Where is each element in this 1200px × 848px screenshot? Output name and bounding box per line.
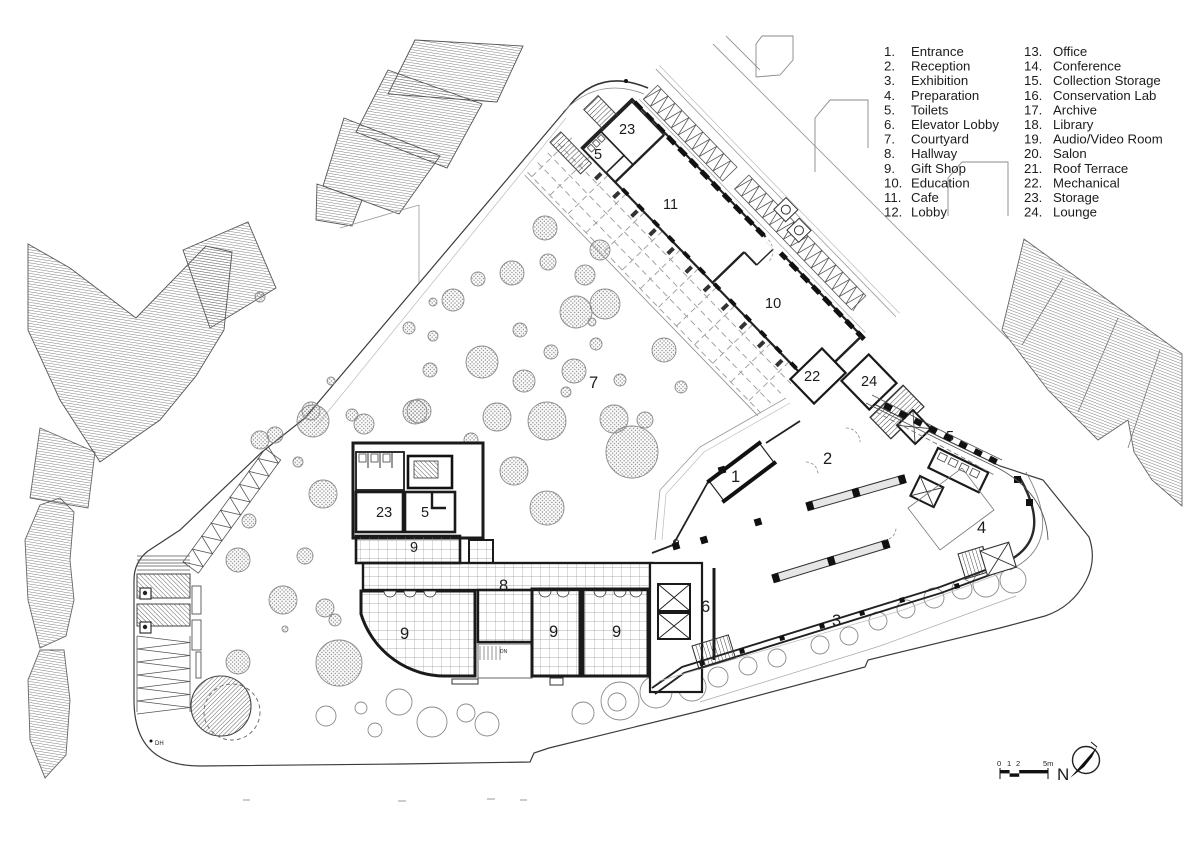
svg-text:Conference: Conference [1053, 59, 1121, 74]
svg-text:Cafe: Cafe [911, 190, 939, 205]
svg-text:8.: 8. [884, 146, 895, 161]
svg-text:18.: 18. [1024, 117, 1042, 132]
svg-text:Lobby: Lobby [911, 205, 947, 220]
svg-text:Toilets: Toilets [911, 102, 949, 117]
svg-text:17.: 17. [1024, 102, 1042, 117]
svg-text:5.: 5. [884, 102, 895, 117]
svg-text:1.: 1. [884, 44, 895, 59]
svg-text:1: 1 [731, 468, 740, 486]
svg-text:2.: 2. [884, 59, 895, 74]
svg-text:Audio/Video Room: Audio/Video Room [1053, 132, 1163, 147]
svg-text:3: 3 [832, 612, 841, 630]
svg-text:24.: 24. [1024, 205, 1042, 220]
svg-text:Entrance: Entrance [911, 44, 964, 59]
svg-text:N: N [1057, 765, 1069, 784]
svg-text:Storage: Storage [1053, 190, 1099, 205]
svg-text:6: 6 [701, 598, 710, 616]
svg-text:11.: 11. [884, 190, 901, 205]
svg-text:24: 24 [861, 374, 877, 390]
svg-text:22.: 22. [1024, 175, 1042, 190]
svg-text:7: 7 [589, 374, 598, 392]
svg-text:21.: 21. [1024, 161, 1042, 176]
svg-text:Salon: Salon [1053, 146, 1087, 161]
svg-text:Mechanical: Mechanical [1053, 175, 1120, 190]
svg-text:19.: 19. [1024, 132, 1042, 147]
svg-text:23: 23 [376, 505, 392, 521]
svg-text:10: 10 [765, 296, 781, 312]
svg-text:22: 22 [804, 369, 820, 385]
svg-text:Roof Terrace: Roof Terrace [1053, 161, 1128, 176]
svg-text:10.: 10. [884, 175, 902, 190]
svg-text:5m: 5m [1043, 759, 1053, 768]
svg-text:Lounge: Lounge [1053, 205, 1097, 220]
svg-text:Office: Office [1053, 44, 1087, 59]
svg-text:Gift Shop: Gift Shop [911, 161, 966, 176]
svg-text:9: 9 [549, 623, 558, 641]
svg-text:Collection Storage: Collection Storage [1053, 73, 1161, 88]
svg-text:5: 5 [594, 147, 602, 163]
svg-text:3.: 3. [884, 73, 895, 88]
svg-text:Education: Education [911, 175, 970, 190]
svg-text:0: 0 [997, 759, 1001, 768]
svg-text:Exhibition: Exhibition [911, 73, 968, 88]
svg-text:6.: 6. [884, 117, 895, 132]
svg-text:9.: 9. [884, 161, 895, 176]
svg-text:23: 23 [619, 122, 635, 138]
svg-text:5: 5 [421, 505, 429, 521]
svg-text:4.: 4. [884, 88, 895, 103]
svg-text:9: 9 [612, 623, 621, 641]
svg-text:Courtyard: Courtyard [911, 132, 969, 147]
svg-text:DH: DH [155, 741, 164, 747]
svg-text:Elevator Lobby: Elevator Lobby [911, 117, 999, 132]
svg-text:16.: 16. [1024, 88, 1042, 103]
svg-text:20.: 20. [1024, 146, 1042, 161]
svg-text:14.: 14. [1024, 59, 1042, 74]
svg-text:Conservation Lab: Conservation Lab [1053, 88, 1156, 103]
svg-text:12.: 12. [884, 205, 902, 220]
svg-text:2: 2 [1016, 759, 1020, 768]
svg-text:Library: Library [1053, 117, 1094, 132]
svg-text:11: 11 [663, 197, 678, 213]
svg-text:1: 1 [1007, 759, 1011, 768]
svg-text:8: 8 [499, 577, 508, 595]
svg-text:23.: 23. [1024, 190, 1042, 205]
svg-text:13.: 13. [1024, 44, 1042, 59]
svg-text:7.: 7. [884, 132, 895, 147]
svg-text:9: 9 [400, 625, 409, 643]
svg-text:DN: DN [500, 649, 508, 655]
svg-text:15.: 15. [1024, 73, 1042, 88]
svg-text:9: 9 [410, 540, 418, 556]
svg-text:Preparation: Preparation [911, 88, 979, 103]
svg-text:Hallway: Hallway [911, 146, 958, 161]
svg-text:Archive: Archive [1053, 102, 1097, 117]
svg-text:Reception: Reception [911, 59, 970, 74]
svg-text:2: 2 [823, 450, 832, 468]
